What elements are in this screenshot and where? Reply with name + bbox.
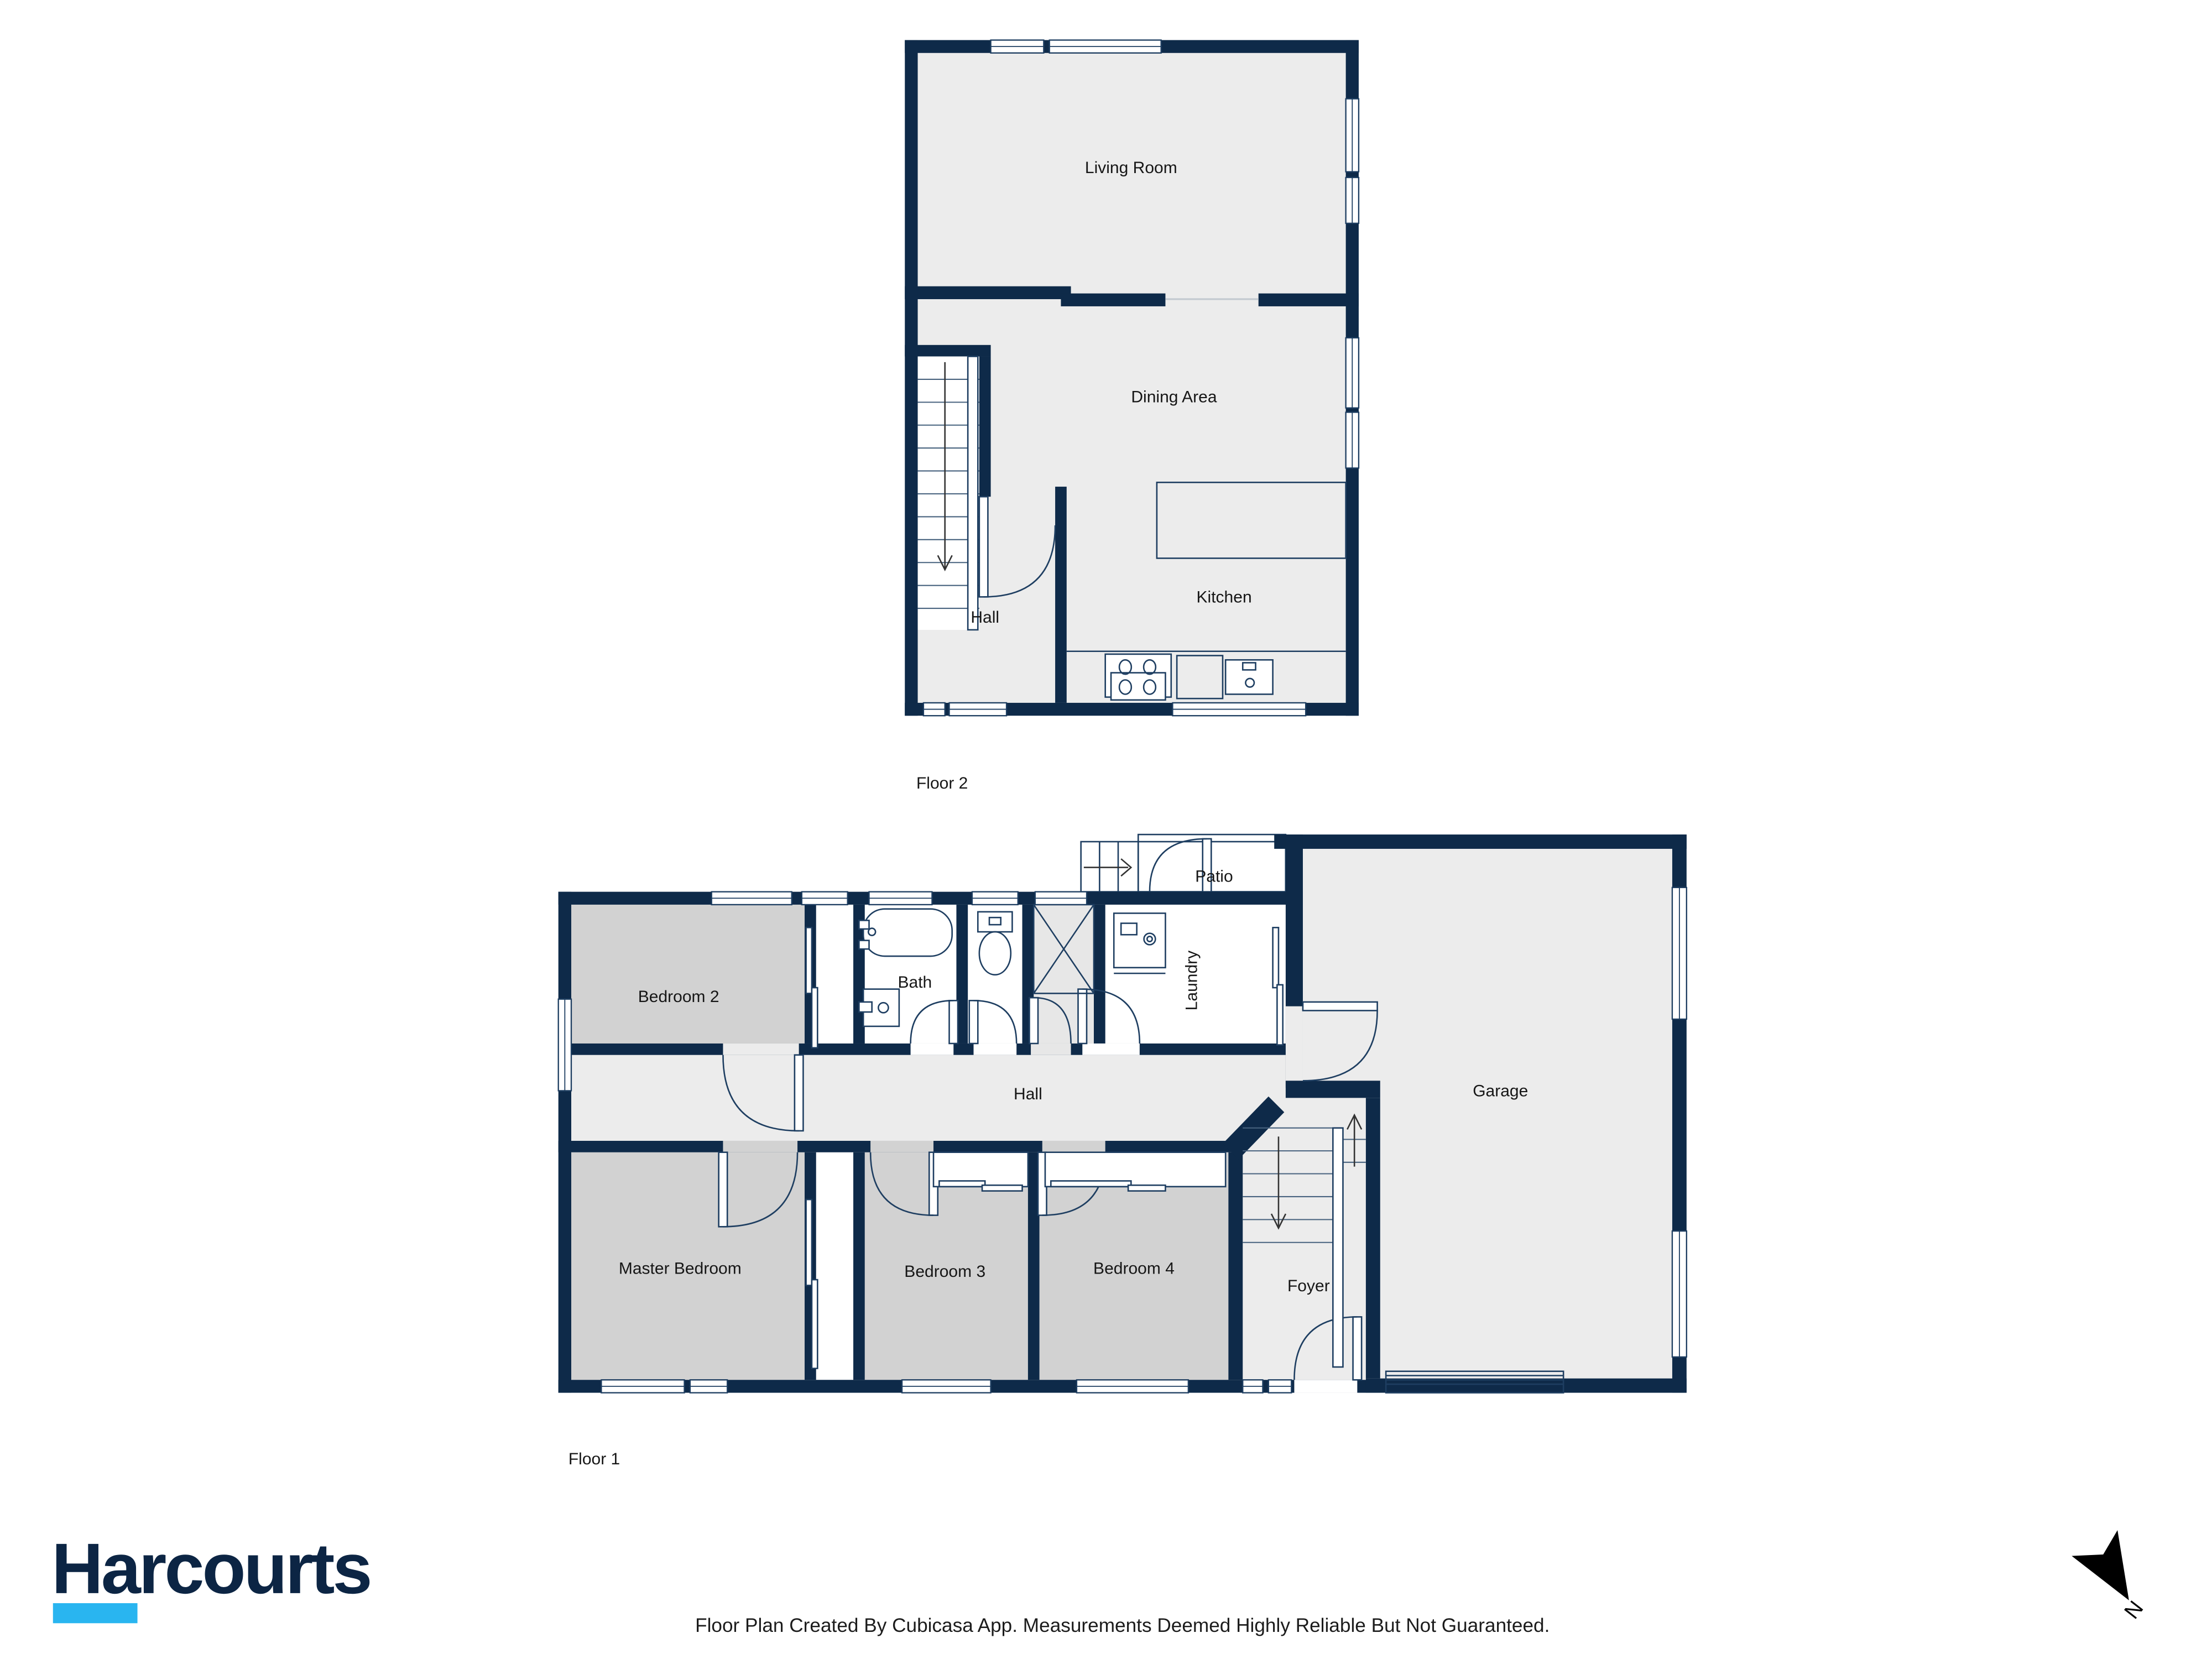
window — [991, 40, 1044, 53]
patio-area — [1081, 834, 1286, 892]
master-bedroom-label: Master Bedroom — [619, 1260, 742, 1278]
window — [1346, 178, 1359, 223]
window — [712, 892, 792, 905]
washer-icon — [1114, 913, 1165, 973]
bedroom2-label: Bedroom 2 — [638, 988, 719, 1006]
bathtub-icon — [859, 909, 952, 956]
garage-label: Garage — [1473, 1082, 1528, 1100]
hall-closet — [816, 1152, 853, 1380]
north-arrow-icon: N — [2072, 1530, 2148, 1624]
patio-label: Patio — [1195, 867, 1233, 885]
foyer-label: Foyer — [1287, 1277, 1330, 1295]
window — [924, 703, 945, 716]
window — [601, 1380, 684, 1392]
floor2-hall-label: Hall — [971, 608, 999, 627]
living-room-label: Living Room — [1085, 159, 1177, 177]
kitchen-label: Kitchen — [1197, 588, 1252, 607]
bedroom3-closet — [933, 1152, 1028, 1191]
window — [1172, 703, 1306, 716]
floor2-label: Floor 2 — [916, 774, 968, 792]
dining-area-label: Dining Area — [1131, 388, 1217, 406]
window — [1346, 99, 1359, 172]
logo-underline — [53, 1603, 138, 1623]
toilet-icon — [978, 912, 1012, 975]
window — [1346, 338, 1359, 408]
window — [1050, 40, 1161, 53]
window — [802, 892, 848, 905]
floor2-plan: Living Room Dining Area Hall Kitchen Flo… — [905, 40, 1359, 792]
window — [950, 703, 1007, 716]
bedroom4-label: Bedroom 4 — [1093, 1260, 1175, 1278]
bedroom2-closet — [816, 905, 853, 1044]
window — [1346, 412, 1359, 468]
floor1-label: Floor 1 — [568, 1450, 620, 1468]
laundry-label: Laundry — [1182, 951, 1201, 1010]
north-label: N — [2120, 1597, 2148, 1624]
window — [1269, 1380, 1291, 1392]
patio-steps — [1081, 842, 1139, 892]
bath-label: Bath — [898, 973, 932, 992]
window — [902, 1380, 991, 1392]
floor1-plan: Bedroom 2 Bath Laundry Patio Garage Hall… — [559, 834, 1687, 1468]
floor2-stair-railing — [968, 357, 978, 630]
floor1-hall-label: Hall — [1014, 1085, 1042, 1103]
logo-text: Harcourts — [51, 1529, 370, 1609]
harcourts-logo: Harcourts — [51, 1529, 370, 1623]
bedroom3-label: Bedroom 3 — [904, 1262, 985, 1281]
window — [559, 999, 571, 1091]
window — [1672, 1231, 1687, 1357]
window — [1035, 892, 1087, 905]
bedroom4-closet — [1045, 1152, 1225, 1191]
bath-sink-icon — [859, 989, 899, 1026]
window — [972, 892, 1018, 905]
window — [1672, 888, 1687, 1019]
kitchen-sink-icon — [1225, 660, 1272, 694]
window — [1077, 1380, 1188, 1392]
foyer-stair-railing — [1333, 1128, 1343, 1367]
bedroom2-room — [571, 905, 805, 1044]
footer-disclaimer: Floor Plan Created By Cubicasa App. Meas… — [695, 1615, 1550, 1636]
window — [690, 1380, 727, 1392]
window — [869, 892, 932, 905]
stove-icon — [1105, 654, 1171, 700]
window — [1243, 1380, 1262, 1392]
floorplan-canvas: Living Room Dining Area Hall Kitchen Flo… — [0, 0, 2212, 1659]
